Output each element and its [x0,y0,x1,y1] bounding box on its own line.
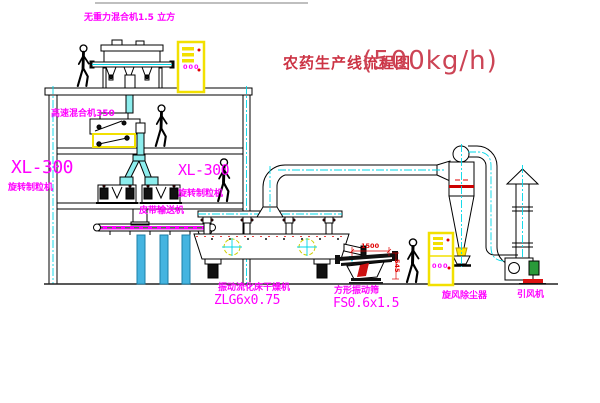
exhaust-stack [507,165,538,258]
fan-motor [529,261,539,275]
person-ground [407,239,419,282]
induced-draft-fan [505,258,546,285]
indicator-dot [447,239,450,242]
feed-downpipe [126,95,133,113]
label-screen-model: FS0.6x1.5 [333,297,399,310]
y-chute [124,155,152,179]
person-floor2 [156,105,167,146]
roof-slab [45,88,252,95]
support-columns [137,235,190,284]
mixer-downpipe [137,133,144,155]
exhaust-duct [257,161,450,217]
label-cyclone: 旋风除尘器 [442,292,487,301]
floor2-slab [57,148,243,154]
granulator-left [96,177,138,203]
dryer-body [194,234,349,259]
label-granulator-left-name: 旋转制粒机 [8,184,53,193]
diagram-title-capacity: (500kg/h) [362,48,498,74]
person-roof [78,45,89,86]
flow-diagram-canvas: 农药生产线流程图 (500kg/h) 无重力混合机1.5 立方 高速混合机350… [0,0,600,403]
fluid-bed-dryer [194,211,366,278]
control-cabinet-right [429,233,453,285]
label-granulator-right-name: 旋转制粒机 [178,190,223,199]
label-belt-conveyor: 皮带输送机 [139,207,184,216]
label-dryer-model: ZLG6x0.75 [214,294,280,307]
dimension-screen-length: 1500 [361,243,379,250]
dryer-feet [205,259,330,278]
cabinet-top-display: 000 [183,64,200,71]
label-granulator-right-model: XL-300 [178,163,229,178]
label-fan: 引风机 [517,291,544,300]
zero-gravity-mixer [90,40,174,113]
label-gravity-mixer: 无重力混合机1.5 立方 [84,14,175,23]
label-high-speed-mixer: 高速混合机350 [51,110,115,119]
vibrating-screen [335,247,399,284]
label-granulator-left-model: XL-300 [11,159,73,177]
indicator-dot [198,49,201,52]
granulator-right [140,177,182,203]
exhaust-pipe [468,146,518,266]
dryer-discharge-spout [344,244,362,255]
label-screen-name: 方形振动筛 [334,287,379,296]
label-dryer-name: 振动流化床干燥机 [218,284,290,293]
dryer-mounts [201,217,335,234]
dimension-screen-height: 545 [394,259,401,273]
cabinet-right-display: 000 [432,263,449,270]
